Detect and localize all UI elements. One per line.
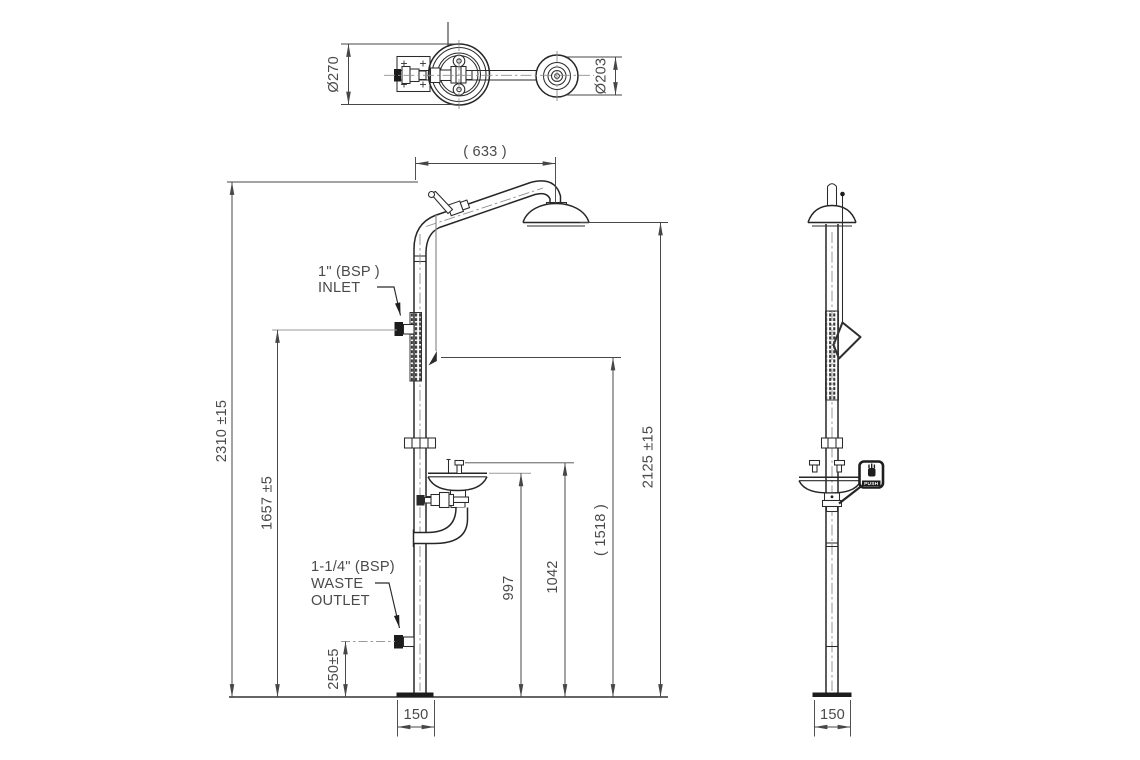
front-view: 2310 ±15 1657 ±5 250±5 997 1042 ( 1518 ) <box>214 144 668 737</box>
bowl-valve <box>417 493 454 508</box>
push-plate: PUSH <box>860 462 884 488</box>
sign-plate <box>410 313 422 382</box>
dim-base-width-side: 150 <box>815 700 851 737</box>
side-eyewash-bowl: PUSH <box>799 461 883 512</box>
dim-spray-height-text: 1042 <box>545 560 561 593</box>
dim-inlet-height-text: 1657 ±5 <box>259 476 275 530</box>
pipe-coupling <box>405 438 436 448</box>
waste-label: 1-1/4" (BSP) WASTE OUTLET <box>311 559 400 628</box>
dim-arm-reach-text: ( 633 ) <box>463 144 507 160</box>
shower-head <box>523 203 589 227</box>
dim-handle-height-text: ( 1518 ) <box>593 504 609 556</box>
side-base-plate <box>813 693 852 698</box>
inlet-label-line1: 1" (BSP ) <box>318 264 380 280</box>
spray-nozzle <box>447 460 464 474</box>
inlet-label-line2: INLET <box>318 280 360 296</box>
dim-overall-height: 2310 ±15 <box>214 182 418 697</box>
dim-base-width-front: 150 <box>398 700 435 737</box>
side-pipe-coupling <box>822 438 843 448</box>
technical-drawing: Ø270 Ø203 <box>0 0 1140 760</box>
dim-base-width-front-text: 150 <box>404 707 429 723</box>
dim-bowl-diameter-text: Ø270 <box>326 56 342 93</box>
side-shower-head <box>808 184 856 226</box>
waste-label-line1: 1-1/4" (BSP) <box>311 559 395 575</box>
dim-bowl-rim-height: 997 <box>489 473 531 697</box>
side-pipe <box>822 224 843 695</box>
waste-fitting <box>394 635 414 649</box>
pull-lever <box>429 192 453 214</box>
dim-overall-height-text: 2310 ±15 <box>214 400 230 462</box>
hand-icon <box>868 464 876 477</box>
inlet-fitting <box>395 322 415 336</box>
waste-leader <box>375 583 400 628</box>
plan-view: Ø270 Ø203 <box>326 22 622 109</box>
waste-label-line3: OUTLET <box>311 593 370 609</box>
dim-base-width-side-text: 150 <box>820 707 845 723</box>
push-plate-text: PUSH <box>864 481 878 487</box>
inlet-leader <box>377 287 401 316</box>
push-plate-bracket <box>839 486 862 504</box>
diameter-dim-203: Ø203 <box>567 57 622 95</box>
dim-head-diameter-text: Ø203 <box>593 58 609 95</box>
side-view: PUSH 150 <box>799 184 883 737</box>
pull-rod-handle <box>429 351 437 366</box>
dim-waste-height: 250±5 <box>326 642 395 698</box>
dim-spray-height: 1042 <box>465 463 574 697</box>
valve-knob <box>417 495 425 506</box>
dim-head-clearance: 2125 ±15 <box>580 223 668 698</box>
side-spray-nozzles <box>810 461 845 473</box>
dim-waste-height-text: 250±5 <box>326 648 342 689</box>
shower-pipe <box>405 181 561 695</box>
eyewash-bowl <box>417 460 488 508</box>
drawing-canvas: Ø270 Ø203 <box>0 0 1140 760</box>
dim-handle-height: ( 1518 ) <box>441 358 621 698</box>
base-plate <box>397 693 434 698</box>
drain-pipe <box>414 508 468 548</box>
waste-label-line2: WASTE <box>311 576 363 592</box>
inlet-label: 1" (BSP ) INLET <box>318 264 401 316</box>
dim-bowl-rim-height-text: 997 <box>501 576 517 601</box>
dim-head-clearance-text: 2125 ±15 <box>640 426 656 488</box>
lever-ball <box>429 192 435 198</box>
side-sign-plate <box>826 311 839 400</box>
